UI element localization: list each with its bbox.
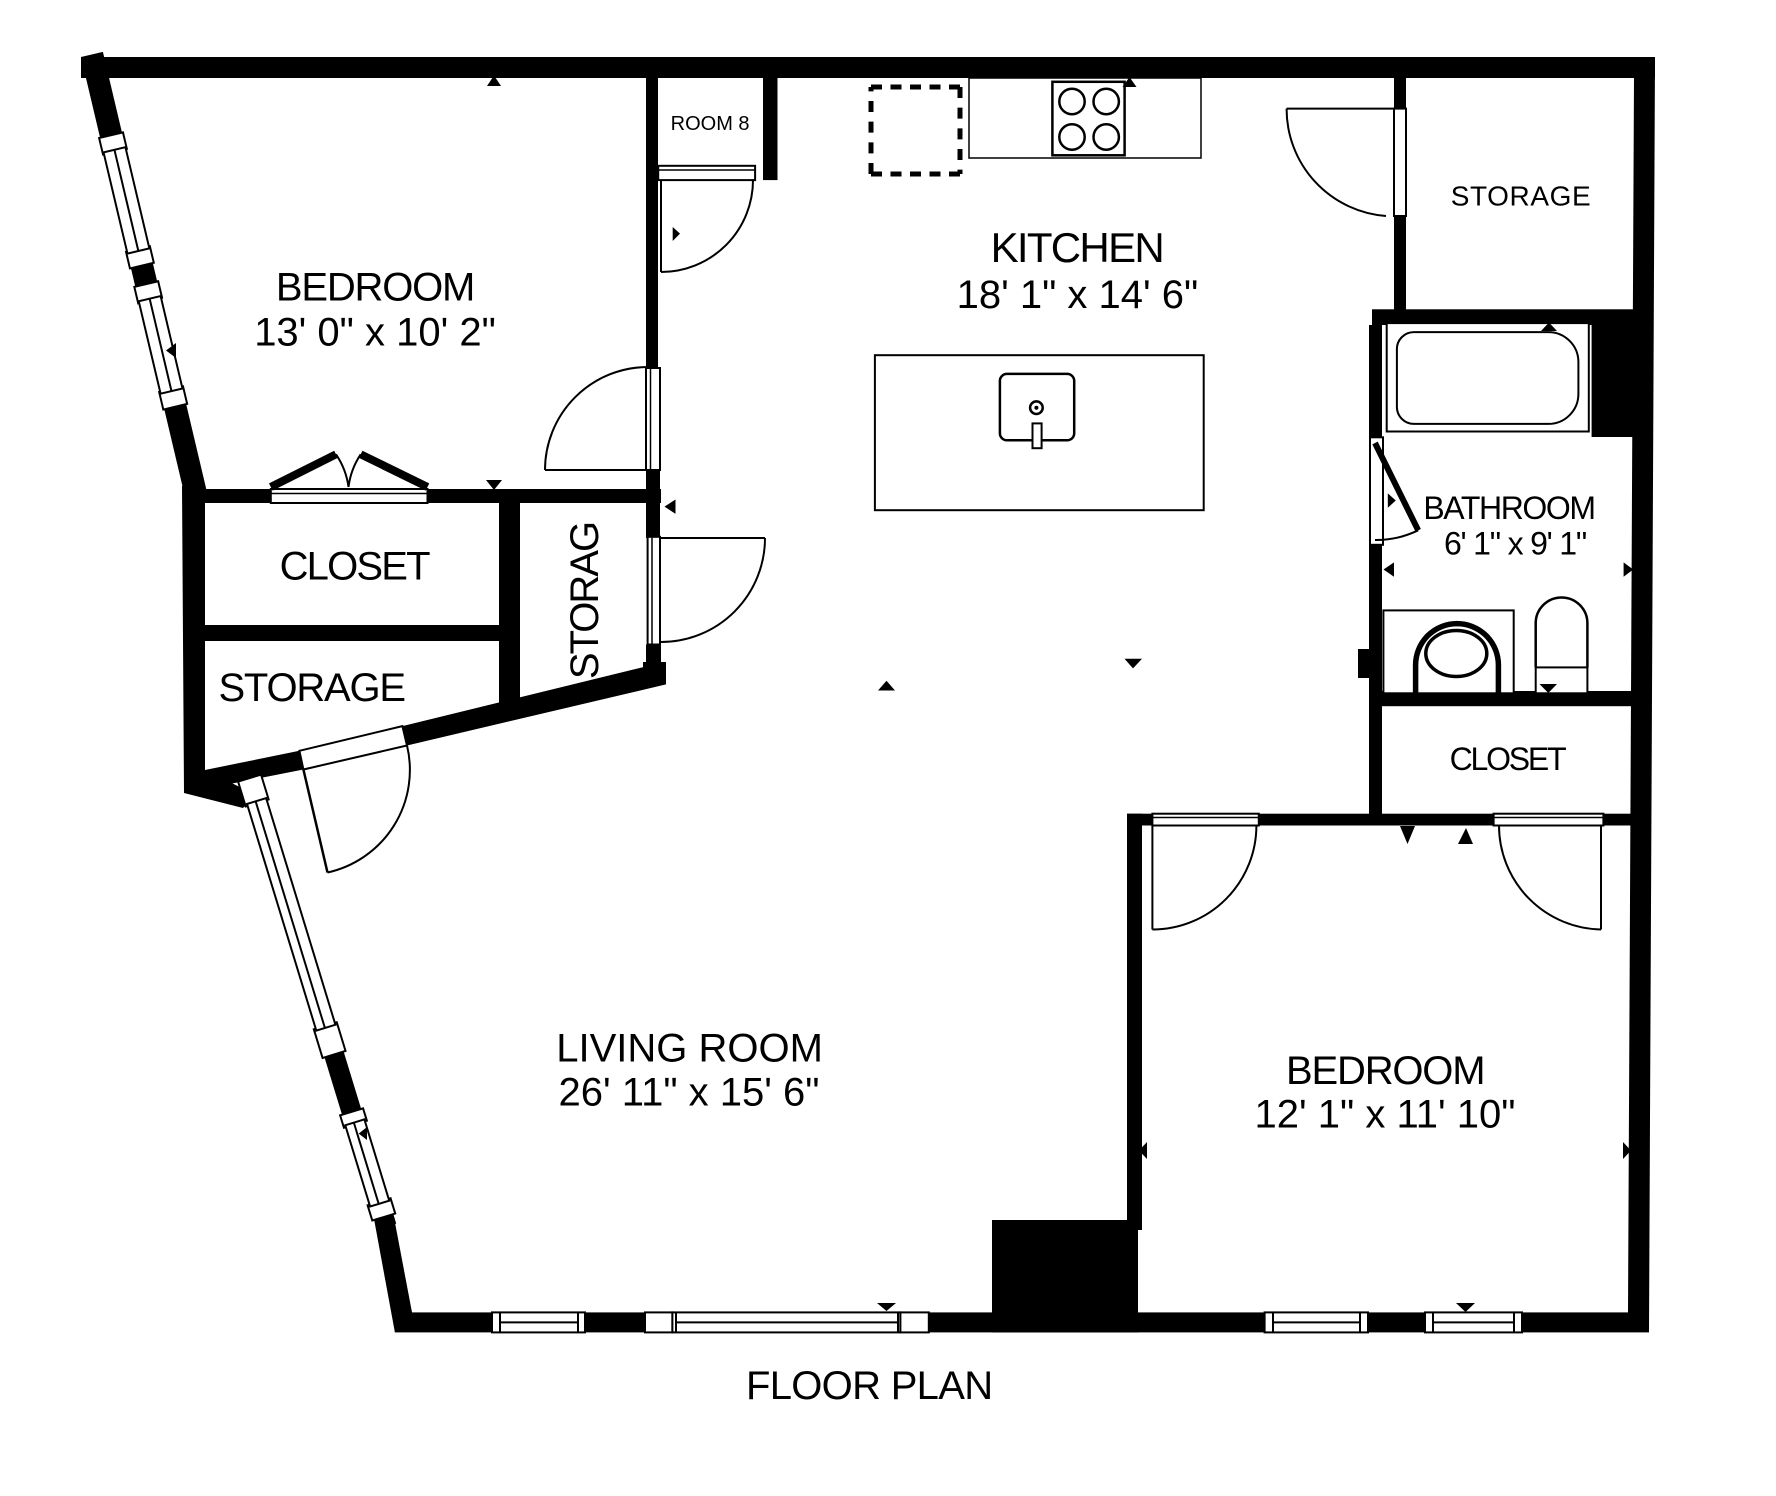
- svg-text:BEDROOM: BEDROOM: [276, 266, 474, 310]
- svg-text:18' 1" x 14' 6": 18' 1" x 14' 6": [957, 273, 1199, 317]
- svg-text:13' 0" x 10' 2": 13' 0" x 10' 2": [254, 310, 496, 354]
- svg-text:CLOSET: CLOSET: [280, 545, 431, 589]
- svg-text:STORAGE: STORAGE: [1451, 181, 1592, 212]
- svg-text:CLOSET: CLOSET: [1450, 741, 1566, 777]
- svg-text:STORAGE: STORAGE: [218, 666, 404, 710]
- svg-text:ROOM 8: ROOM 8: [671, 113, 750, 135]
- svg-text:6' 1" x 9' 1": 6' 1" x 9' 1": [1444, 525, 1586, 561]
- svg-text:BEDROOM: BEDROOM: [1286, 1049, 1484, 1093]
- svg-text:LIVING ROOM: LIVING ROOM: [556, 1027, 823, 1071]
- svg-text:KITCHEN: KITCHEN: [991, 224, 1163, 271]
- svg-text:12' 1" x 11' 10": 12' 1" x 11' 10": [1255, 1093, 1516, 1137]
- svg-text:BATHROOM: BATHROOM: [1423, 490, 1594, 526]
- svg-text:STORAG: STORAG: [563, 523, 607, 679]
- svg-text:26' 11" x 15' 6": 26' 11" x 15' 6": [559, 1071, 820, 1115]
- svg-text:FLOOR PLAN: FLOOR PLAN: [746, 1364, 992, 1408]
